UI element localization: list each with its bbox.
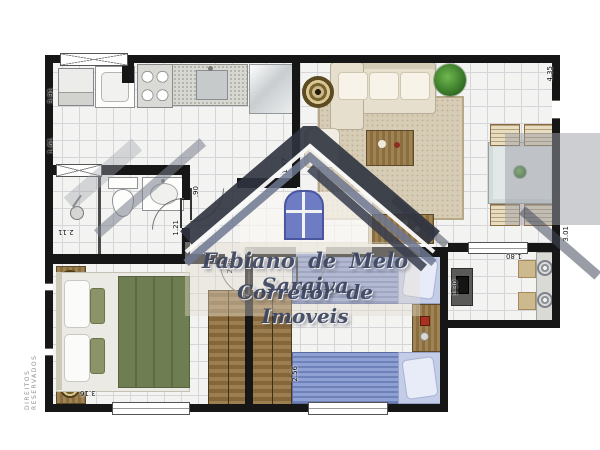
bar-stool — [537, 292, 553, 308]
sofa-cushion — [400, 72, 430, 100]
dimension-label: 3.16 — [80, 389, 96, 397]
pillow — [64, 280, 90, 328]
dimension-label: 1.80 — [506, 252, 522, 260]
single-bed — [292, 352, 400, 404]
accent-pillow — [90, 338, 105, 374]
round-side-table — [302, 76, 334, 108]
service-window — [60, 53, 128, 66]
laundry-tank — [58, 68, 94, 106]
dimension-label: 1.30 — [451, 280, 459, 296]
logo-window-mullion — [302, 192, 305, 238]
kitchen-faucet — [208, 66, 213, 71]
dimension-label: 2.11 — [58, 228, 74, 236]
dimension-label: 3.91 — [47, 88, 55, 104]
terrace-cushion — [518, 260, 536, 278]
logo-window-icon — [284, 190, 324, 240]
bedroom2-window — [308, 402, 388, 415]
logo-window-mullion — [286, 210, 322, 213]
bedroom1-window — [112, 402, 190, 415]
pillow — [401, 356, 438, 400]
dimension-label: 2.56 — [291, 366, 299, 382]
living-wall-opening — [552, 100, 560, 119]
dimension-label: 4.35 — [546, 66, 554, 82]
bedroom1-wall-vent — [45, 348, 53, 356]
nightstand-decor — [420, 316, 430, 326]
headboard — [56, 272, 62, 390]
wall-terrace-bottom — [440, 320, 560, 328]
wall-service-stub — [122, 63, 134, 83]
sofa-cushion — [369, 72, 399, 100]
watermark-gray-box — [505, 133, 600, 225]
accent-pillow — [90, 288, 105, 324]
stove — [137, 64, 173, 108]
bedroom1-wall-vent — [45, 283, 53, 291]
nightstand-decor — [420, 332, 429, 341]
rights-reserved-text: DIREITOS RESERVADOS — [24, 326, 38, 410]
pillow — [64, 334, 90, 382]
wall-left — [45, 55, 53, 412]
terrace-cushion — [518, 292, 536, 310]
toilet-tank — [108, 177, 138, 189]
watermark-subtitle: Corretor de Imoveis — [192, 280, 418, 328]
kitchen-sink — [196, 70, 228, 100]
plant-icon — [434, 64, 466, 96]
sofa-cushion — [338, 72, 368, 100]
floor-plan-image: 3.91 1.61 2.11 1.21 .90 1.97 2.88 .80 3.… — [0, 0, 600, 450]
dimension-label: 1.61 — [47, 138, 55, 154]
bar-stool — [537, 260, 553, 276]
outside-cutout — [448, 328, 600, 450]
fridge — [249, 64, 295, 114]
